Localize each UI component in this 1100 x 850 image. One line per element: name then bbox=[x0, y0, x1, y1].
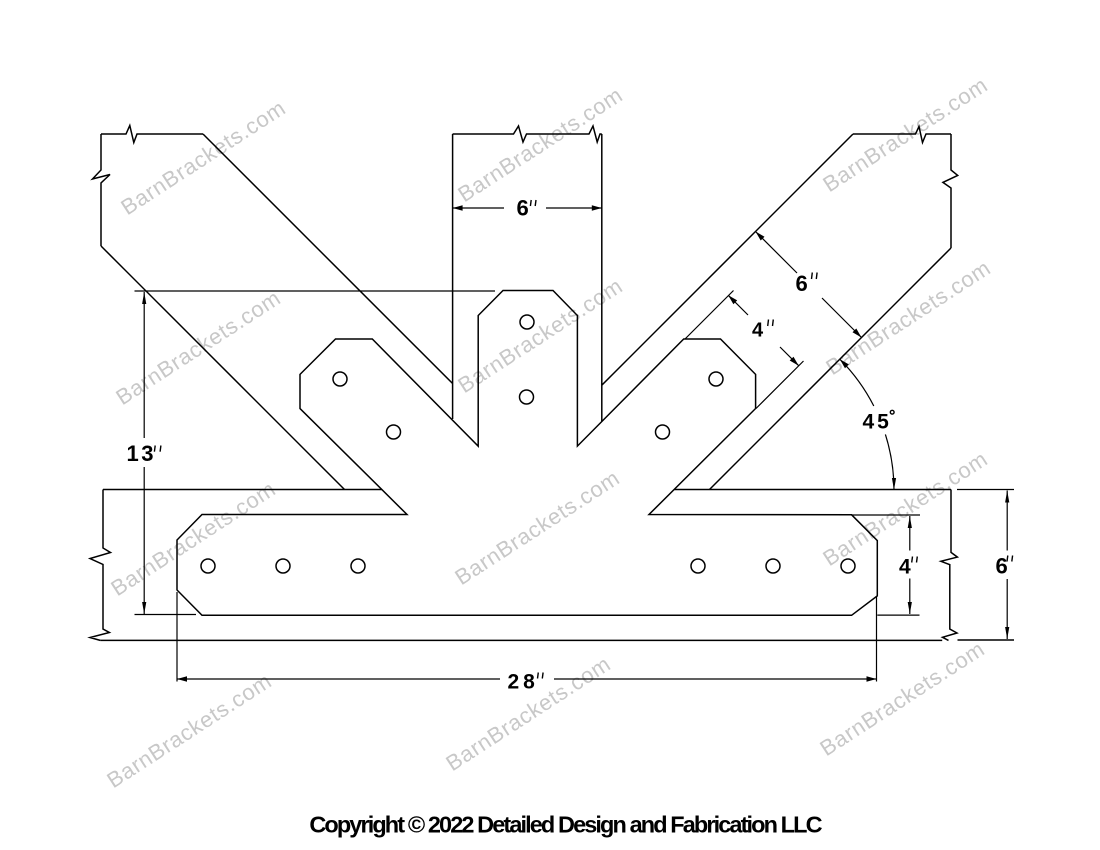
svg-text:28: 28 bbox=[508, 671, 539, 694]
svg-text:4: 4 bbox=[752, 320, 764, 342]
svg-text:6: 6 bbox=[796, 271, 808, 296]
svg-text:6: 6 bbox=[996, 554, 1008, 579]
svg-text:6: 6 bbox=[517, 196, 529, 221]
svg-text:13: 13 bbox=[127, 441, 156, 466]
svg-text:4: 4 bbox=[899, 556, 911, 579]
svg-text:Copyright © 2022 Detailed Desi: Copyright © 2022 Detailed Design and Fab… bbox=[309, 812, 822, 838]
svg-text:45: 45 bbox=[863, 411, 892, 434]
